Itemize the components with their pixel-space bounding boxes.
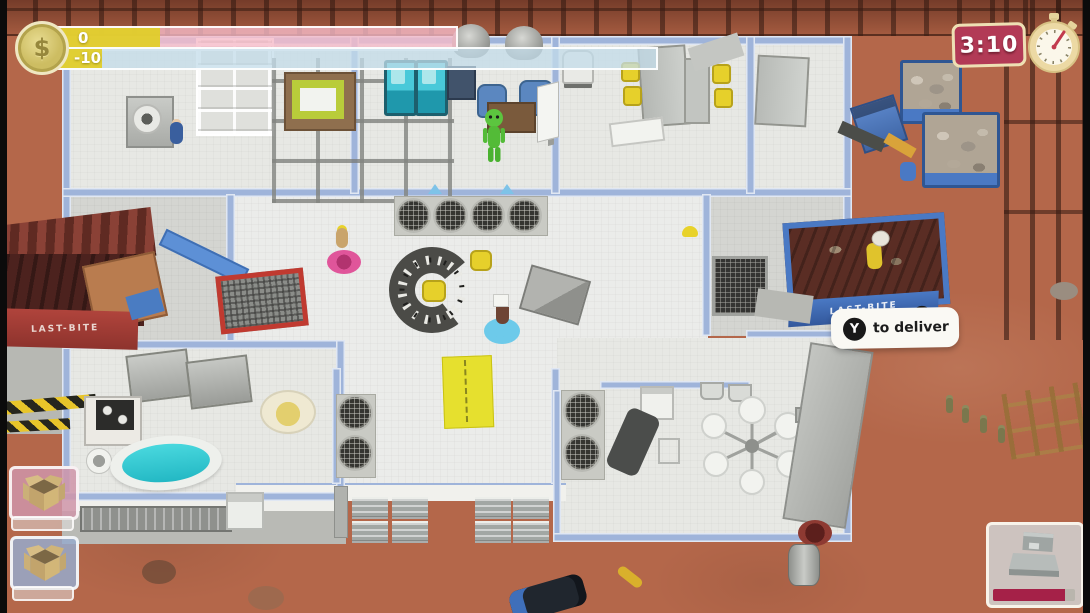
- inventory-card-2-slot[interactable]: [12, 586, 74, 601]
- fan-grille: [339, 437, 371, 469]
- fan-grille: [565, 436, 599, 470]
- fan-grille: [509, 200, 540, 231]
- army-figure: [998, 428, 1005, 443]
- worker-tan: [336, 228, 348, 248]
- cardboard-box-icon: [24, 543, 66, 583]
- scaffold-rail: [1004, 120, 1084, 124]
- office-chair: [623, 86, 642, 106]
- conveyor: [80, 506, 232, 532]
- fan-grille: [339, 397, 371, 429]
- whiteboard-easel: [537, 81, 559, 142]
- bench: [352, 521, 388, 543]
- army-figure: [980, 418, 987, 433]
- floor-polisher: [86, 448, 112, 474]
- y-button-label: Y: [850, 321, 860, 336]
- scaffold-rail: [1004, 210, 1084, 214]
- bench: [392, 497, 428, 519]
- red-debris: [798, 520, 832, 546]
- bench: [392, 521, 428, 543]
- stool-sketch: [658, 438, 680, 464]
- inventory-card-2[interactable]: [10, 536, 79, 590]
- timer-panel: 3:10: [951, 22, 1026, 68]
- prompt-label: to deliver: [873, 319, 949, 336]
- manhole: [248, 586, 284, 610]
- money-bar-balance: -10: [40, 47, 658, 70]
- y-button-icon: Y: [843, 317, 866, 340]
- coin-icon: $: [15, 21, 69, 75]
- fan-grille: [472, 200, 503, 231]
- machine-white: [226, 492, 264, 530]
- console-chair: [470, 250, 492, 271]
- build-progress-track: [993, 589, 1075, 601]
- wrench: [616, 564, 644, 589]
- bench: [475, 521, 511, 543]
- bench-panel: [334, 486, 348, 538]
- ac-fan-unit: [132, 104, 162, 134]
- wall-arrow: [500, 184, 514, 194]
- letterbox-right: [1083, 0, 1090, 613]
- money-balance-value: -10: [74, 51, 101, 66]
- truck-side-panel: LAST-BITE: [0, 308, 138, 350]
- worker-blue: [170, 122, 183, 144]
- pink-stool: [327, 250, 361, 274]
- wall: [702, 194, 711, 336]
- cardboard-box-icon: [23, 473, 65, 513]
- delivery-prompt[interactable]: Y to deliver: [831, 307, 960, 349]
- build-card[interactable]: [986, 522, 1084, 608]
- scaffold-rail: [0, 8, 1090, 11]
- bench: [352, 497, 388, 519]
- office-desk: [754, 55, 810, 128]
- hard-hat: [682, 226, 698, 237]
- bench: [475, 497, 511, 519]
- wall-arrow: [428, 184, 442, 194]
- yellow-mat: [442, 355, 494, 429]
- timer-value: 3:10: [959, 32, 1018, 59]
- wood-scaffold: [1001, 382, 1088, 459]
- carried-box: [493, 294, 509, 307]
- mesh-ramp: [215, 268, 309, 335]
- build-progress-fill: [993, 589, 1065, 601]
- letterbox-left: [0, 0, 7, 613]
- inventory-card-1-slot[interactable]: [11, 516, 74, 531]
- fan-grille: [565, 394, 599, 428]
- blue-barrel: [900, 162, 916, 181]
- bench: [513, 497, 549, 519]
- money-earned-value: 0: [78, 31, 88, 46]
- stove-top: [96, 400, 134, 430]
- wall: [553, 390, 561, 540]
- wall: [62, 492, 346, 501]
- manhole: [142, 560, 176, 584]
- office-chair: [714, 88, 733, 108]
- game-viewport: LAST-BITE LAST-BITE: [0, 0, 1090, 613]
- barrel: [788, 544, 820, 586]
- army-figure: [962, 408, 969, 423]
- army-figure: [946, 398, 953, 413]
- counter-block: [185, 354, 252, 409]
- office-chair: [712, 64, 731, 84]
- countertop-machine-icon: [1005, 531, 1063, 579]
- fan-grille: [435, 200, 466, 231]
- truck-label: LAST-BITE: [31, 323, 99, 335]
- rubble-dumpster: [922, 112, 1000, 188]
- kitchen-counter-inner: [300, 88, 336, 111]
- car: [507, 572, 589, 613]
- pet-bed: [260, 390, 316, 434]
- coin-symbol: $: [34, 34, 51, 62]
- bench: [513, 521, 549, 543]
- stopwatch-icon: [1024, 12, 1084, 74]
- rock: [1050, 282, 1078, 300]
- alien-character: [478, 108, 510, 170]
- wall: [746, 36, 755, 194]
- inventory-card-1[interactable]: [9, 466, 79, 520]
- console-chair: [422, 280, 446, 302]
- fan-grille: [398, 200, 429, 231]
- delivery-truck-left: LAST-BITE: [0, 214, 304, 354]
- sideboard: [447, 66, 476, 100]
